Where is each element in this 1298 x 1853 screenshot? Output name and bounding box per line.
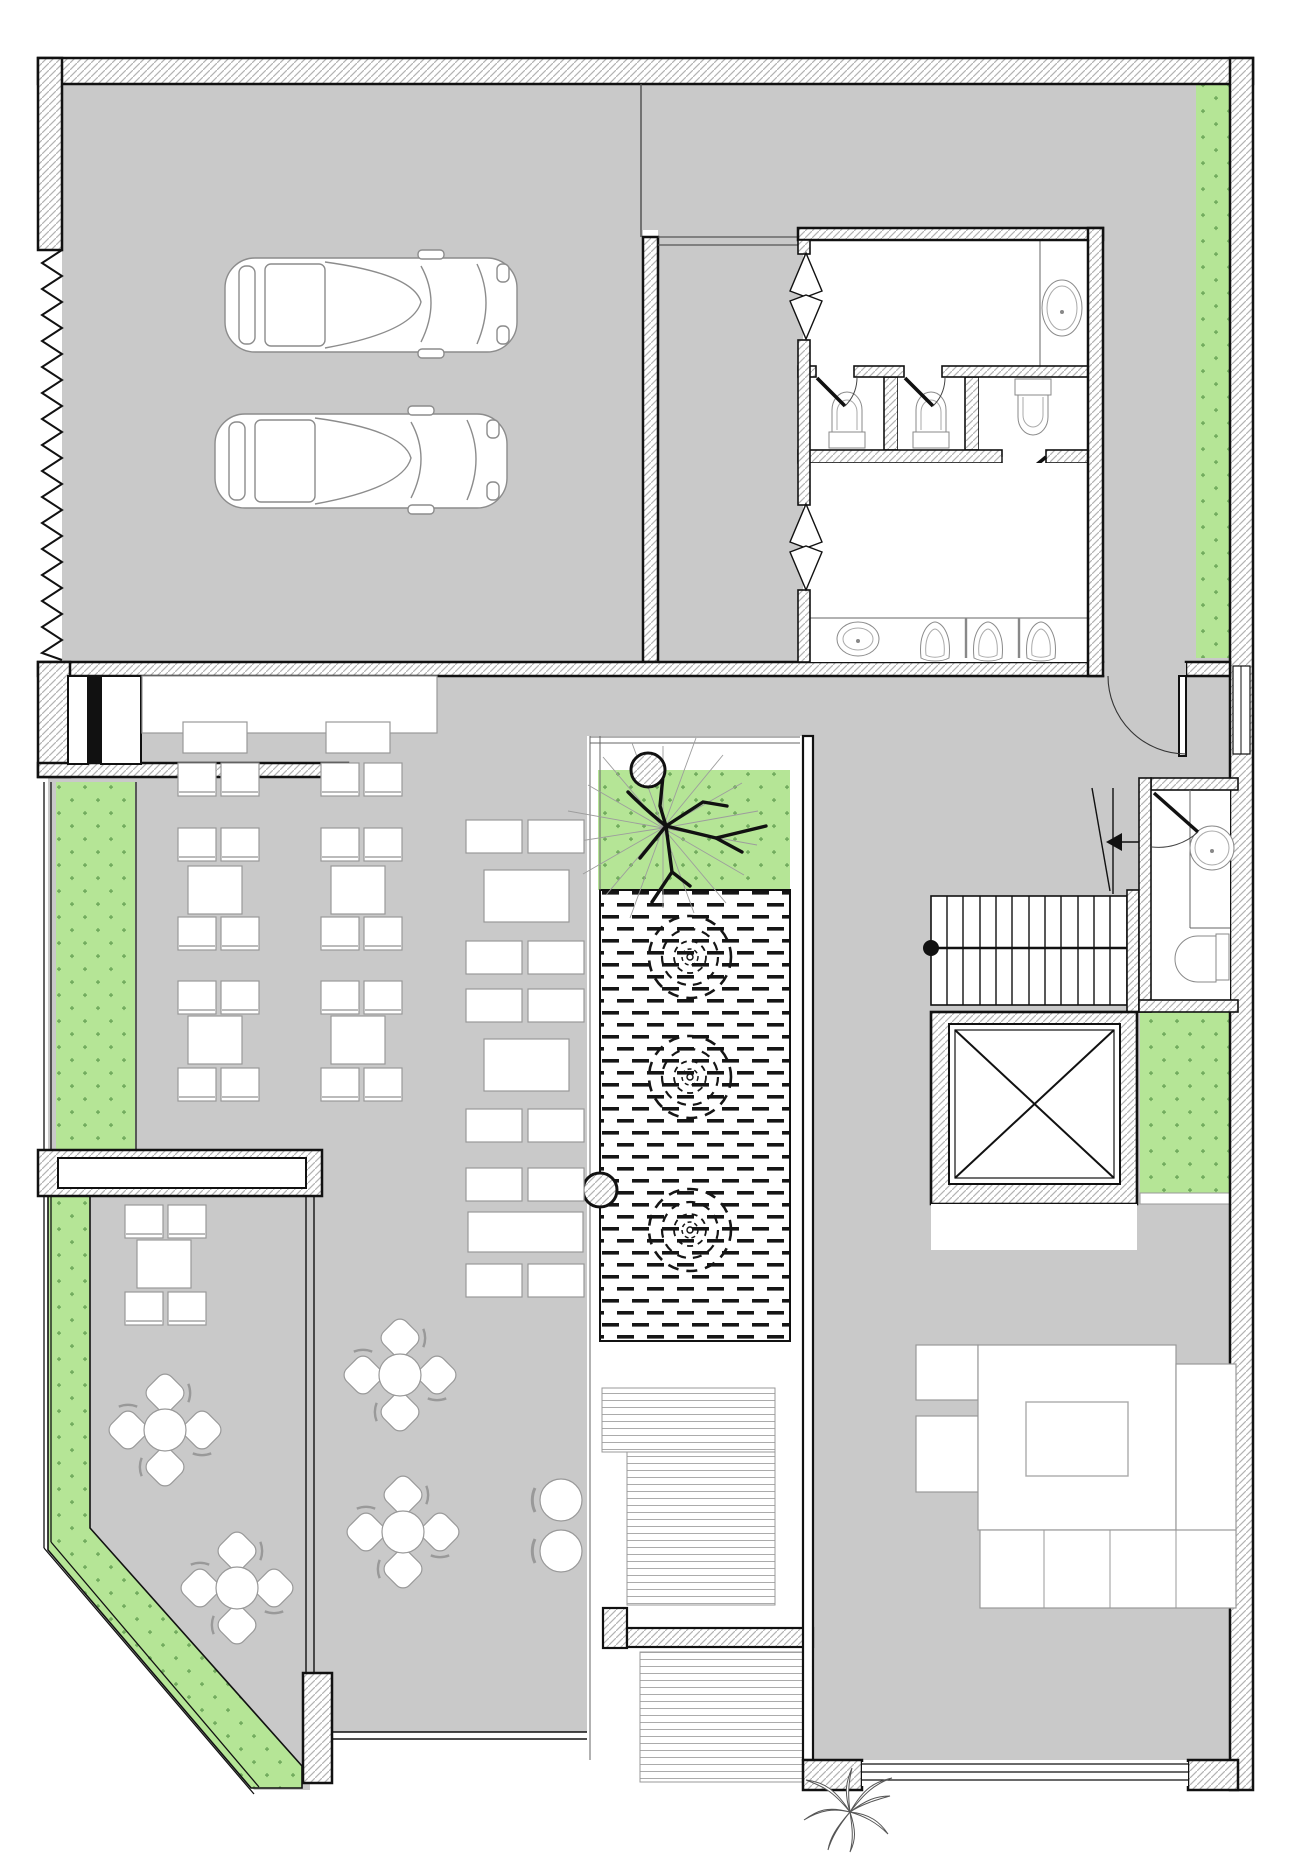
- east-hall-floor: [1103, 228, 1196, 676]
- garage-door-zigzag: [42, 250, 62, 660]
- planting-bed-elevator: [1140, 1012, 1238, 1193]
- stair-start-dot: [923, 940, 939, 956]
- round-column: [631, 753, 665, 787]
- banquette-table: [468, 1212, 583, 1252]
- tree-planting-patch: [598, 770, 790, 890]
- wall-north: [38, 58, 1253, 84]
- toilet-icon: [1175, 934, 1229, 982]
- corridor-floor: [658, 228, 803, 676]
- wall-restroom-north: [798, 228, 1103, 240]
- atrium: [567, 736, 813, 1782]
- sofa-section: [916, 1345, 978, 1400]
- sofa-section: [1176, 1364, 1236, 1532]
- wall-atrium-east: [803, 736, 813, 1760]
- coffee-table: [1026, 1402, 1128, 1476]
- sofa-chaise-row: [980, 1530, 1236, 1608]
- wall-pier: [88, 676, 101, 764]
- elevator: [931, 1012, 1137, 1250]
- entrance-door-leaf: [1179, 676, 1186, 756]
- wall-west-upper: [38, 58, 62, 250]
- deck-wall-stub: [603, 1608, 627, 1648]
- round-column: [583, 1173, 617, 1207]
- deck-wall: [627, 1628, 813, 1647]
- niche: [68, 676, 88, 764]
- upper-hall-floor: [62, 84, 1196, 230]
- window: [862, 1762, 1188, 1786]
- sofa-section: [916, 1416, 978, 1492]
- floor-plan-drawing: [0, 0, 1298, 1853]
- niche: [101, 676, 141, 764]
- wall-garage-east: [643, 237, 658, 662]
- powder-room: [1139, 778, 1238, 1012]
- wall-entry-stub: [1186, 662, 1230, 676]
- atrium-top-link-floor: [587, 676, 813, 736]
- wall-garage-south: [38, 662, 1103, 676]
- planter-box: [58, 1158, 306, 1188]
- planting-strip-west-upper: [56, 782, 135, 1150]
- elevator-landing: [931, 1204, 1137, 1250]
- wall-pier-south: [303, 1673, 332, 1783]
- wall-restroom-east: [1088, 228, 1103, 676]
- floor-plan-page: [0, 0, 1298, 1853]
- reflecting-pool: [600, 890, 790, 1341]
- restrooms: [790, 228, 1103, 676]
